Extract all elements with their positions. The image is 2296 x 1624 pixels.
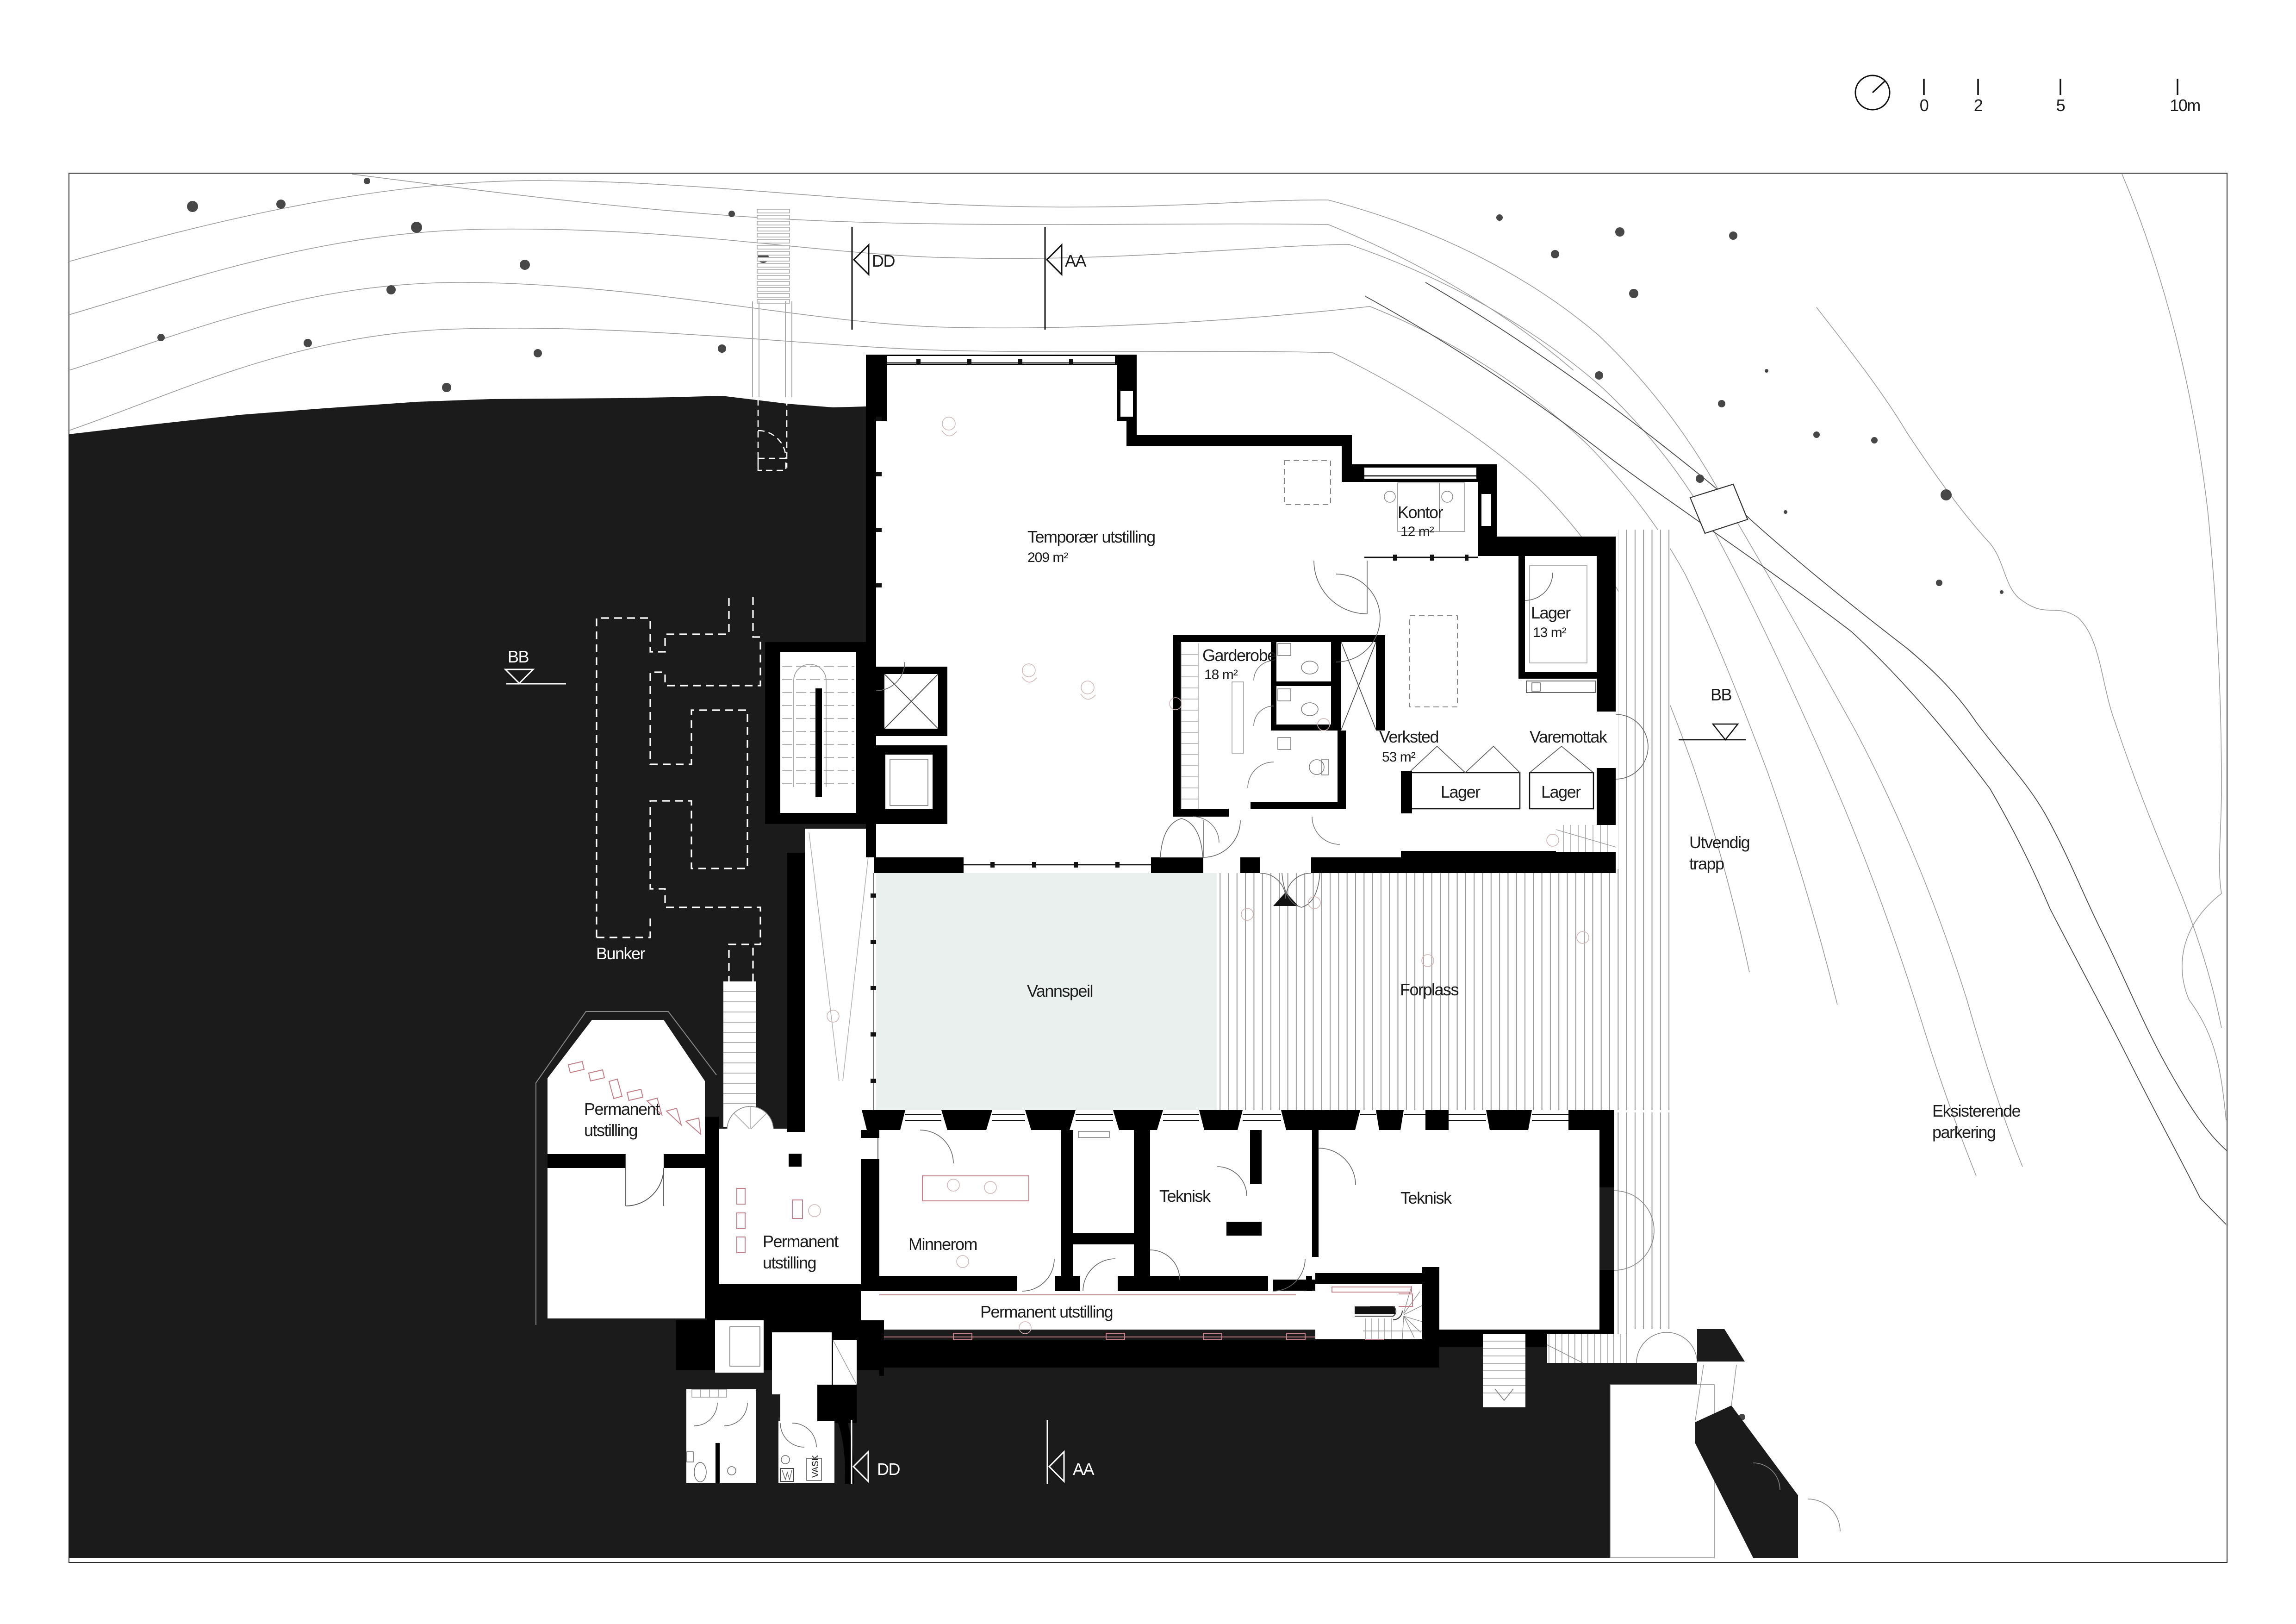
svg-text:AA: AA	[1065, 251, 1087, 270]
svg-text:Eksisterende: Eksisterende	[1932, 1101, 2021, 1120]
svg-text:Permanent utstilling: Permanent utstilling	[980, 1302, 1113, 1321]
svg-text:Permanent: Permanent	[763, 1232, 839, 1251]
svg-text:VASK: VASK	[811, 1455, 821, 1478]
svg-text:Lager: Lager	[1441, 782, 1481, 801]
svg-text:Permanent: Permanent	[584, 1099, 660, 1118]
svg-text:0: 0	[1920, 96, 1929, 115]
svg-text:parkering: parkering	[1932, 1123, 1996, 1142]
svg-text:Garderobe: Garderobe	[1202, 646, 1276, 665]
svg-text:2: 2	[1974, 96, 1983, 115]
svg-text:BB: BB	[508, 647, 529, 666]
svg-text:209 m²: 209 m²	[1027, 550, 1068, 565]
svg-text:Verksted: Verksted	[1379, 727, 1438, 746]
svg-text:Temporær utstilling: Temporær utstilling	[1027, 527, 1155, 546]
svg-text:utstilling: utstilling	[584, 1121, 637, 1140]
svg-text:BB: BB	[1711, 685, 1732, 704]
svg-text:utstilling: utstilling	[763, 1253, 816, 1272]
svg-text:Kontor: Kontor	[1398, 503, 1444, 522]
svg-text:Vannspeil: Vannspeil	[1027, 981, 1093, 1000]
svg-text:10m: 10m	[2170, 96, 2200, 115]
svg-text:Minnerom: Minnerom	[908, 1235, 977, 1254]
svg-text:Forplass: Forplass	[1400, 980, 1459, 999]
svg-text:Teknisk: Teknisk	[1400, 1188, 1452, 1207]
svg-text:13 m²: 13 m²	[1533, 625, 1567, 640]
svg-text:DD: DD	[872, 251, 895, 270]
svg-text:AA: AA	[1073, 1460, 1095, 1479]
svg-text:trapp: trapp	[1689, 854, 1724, 873]
svg-text:Varemottak: Varemottak	[1530, 727, 1608, 746]
svg-text:18 m²: 18 m²	[1204, 667, 1238, 682]
svg-text:Teknisk: Teknisk	[1159, 1187, 1211, 1206]
svg-text:Lager: Lager	[1531, 603, 1571, 622]
svg-text:12 m²: 12 m²	[1400, 524, 1434, 539]
svg-text:53 m²: 53 m²	[1382, 750, 1416, 765]
svg-text:DD: DD	[877, 1460, 900, 1479]
svg-text:Lager: Lager	[1541, 782, 1581, 801]
svg-text:5: 5	[2056, 96, 2065, 115]
svg-text:Utvendig: Utvendig	[1689, 833, 1749, 852]
svg-text:Bunker: Bunker	[596, 944, 646, 963]
